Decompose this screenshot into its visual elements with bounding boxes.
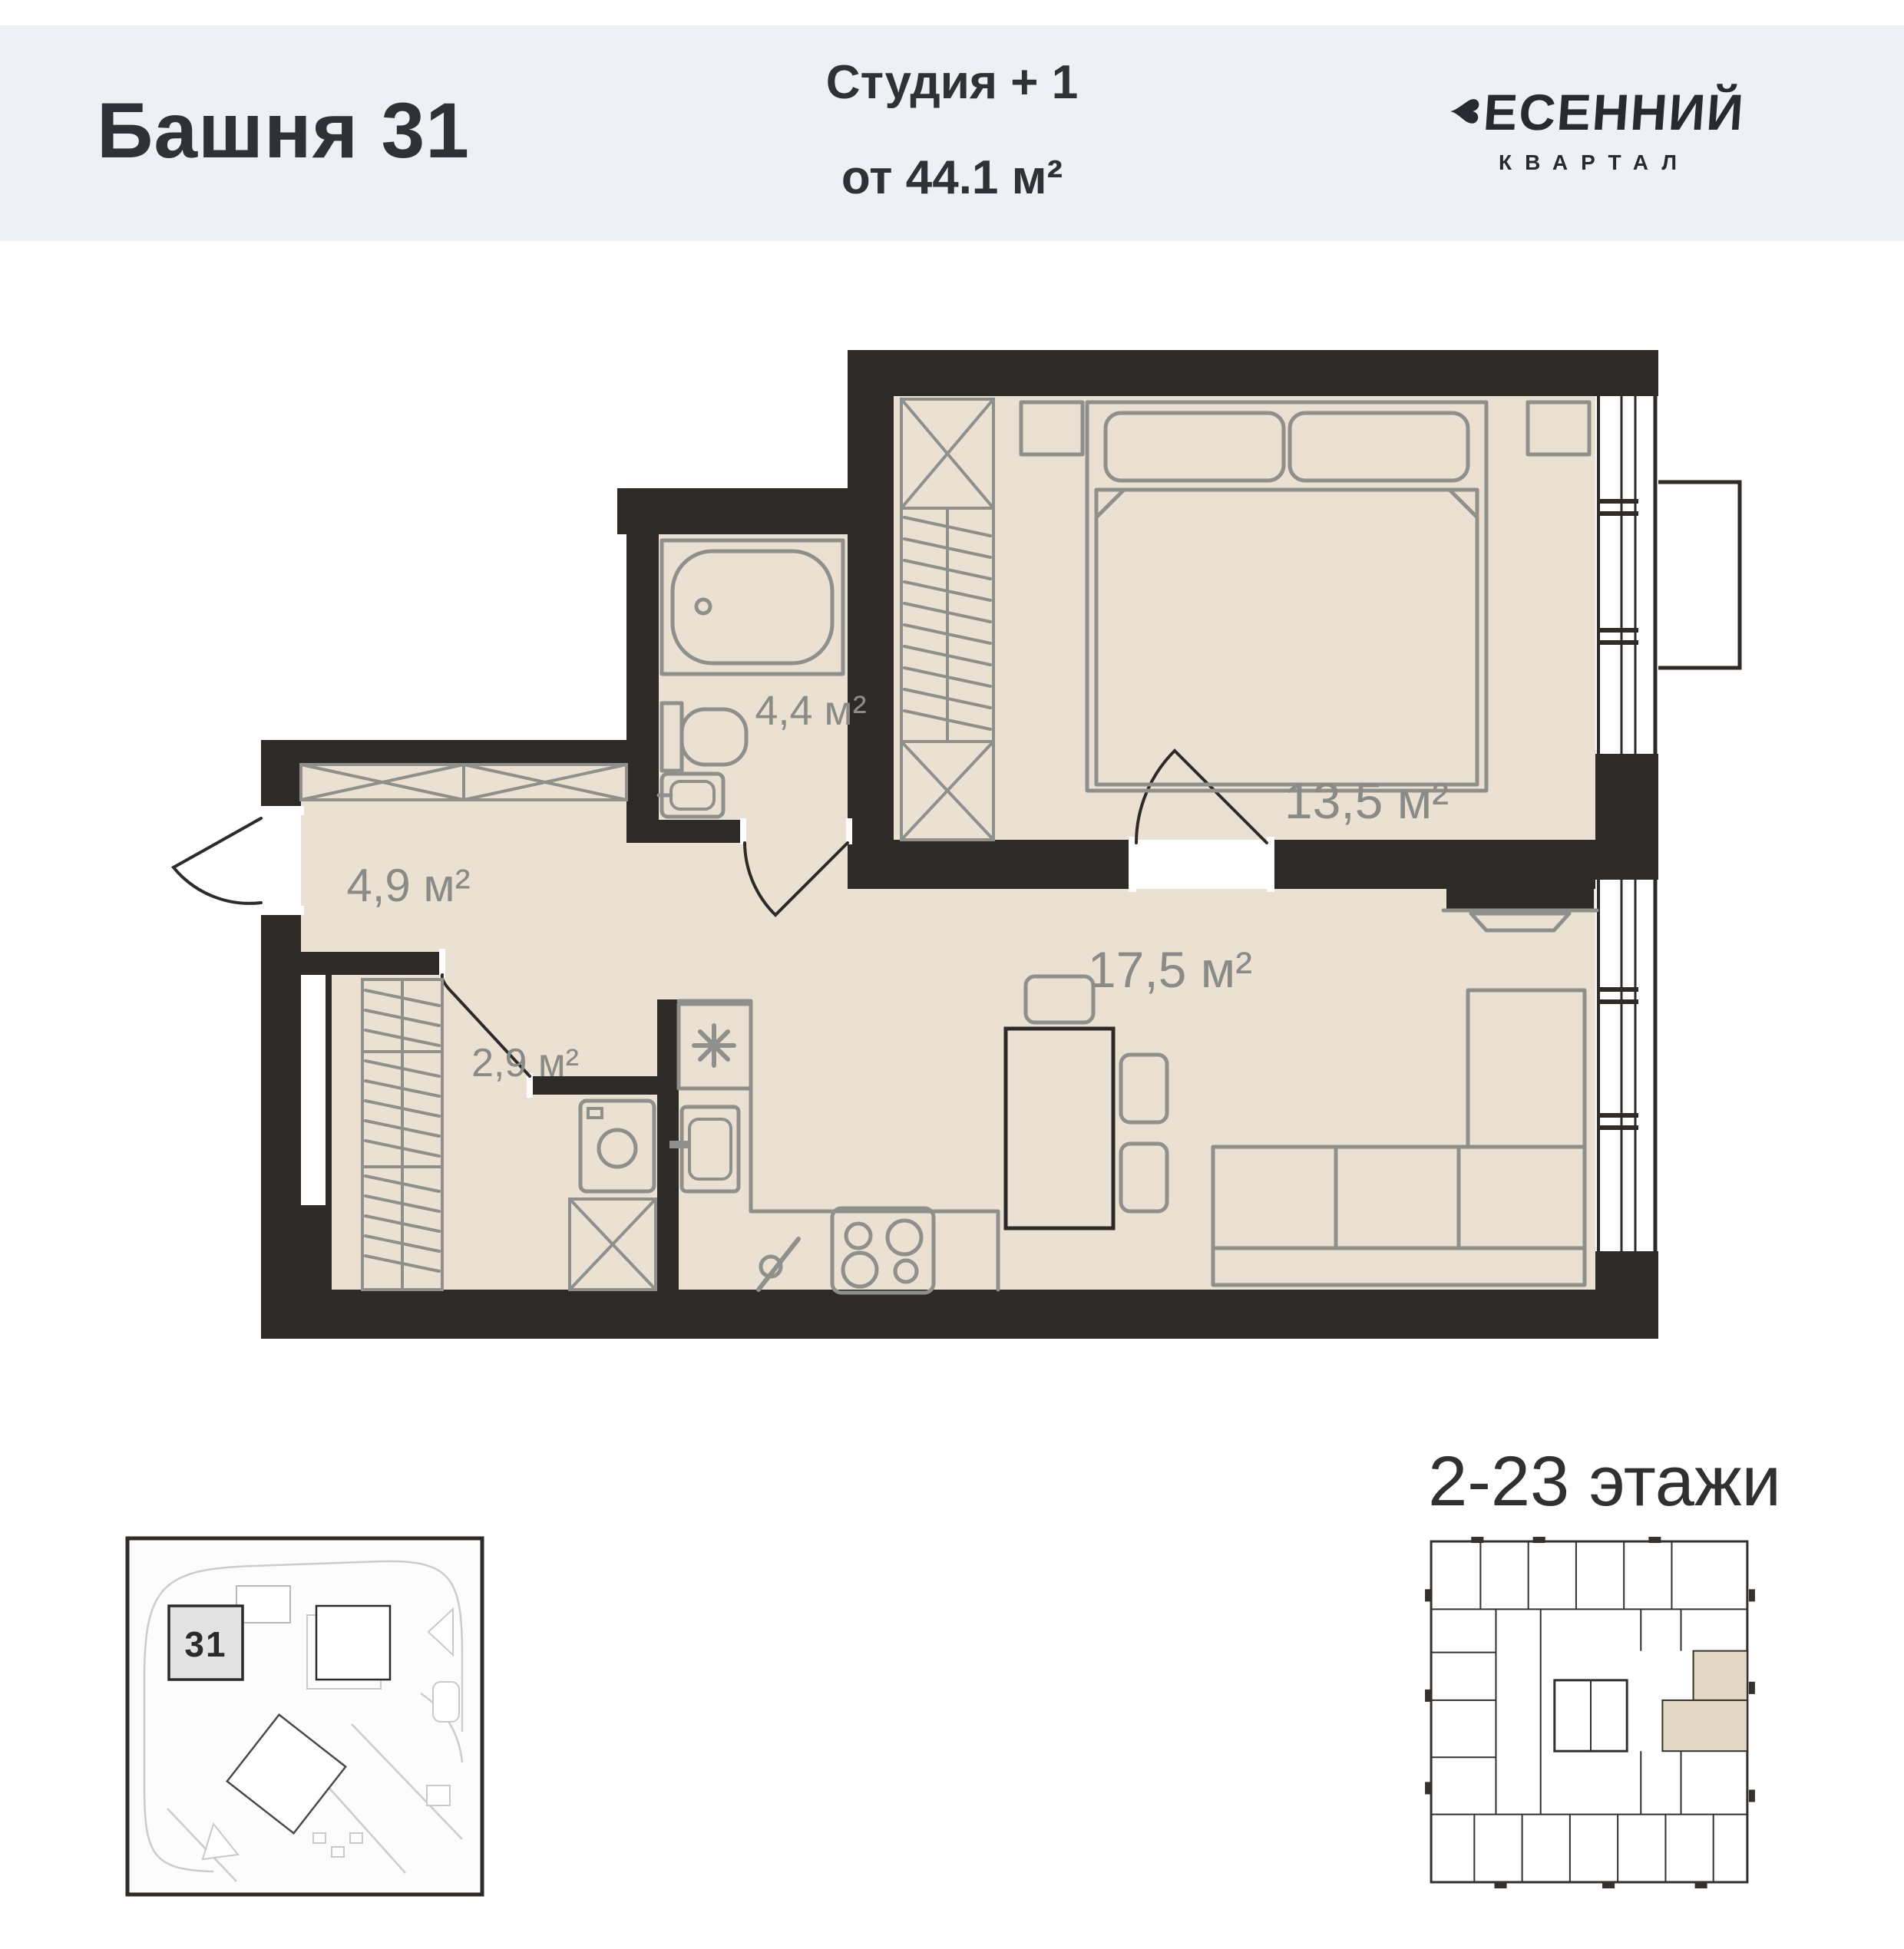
brand-logo: ♥ ЕСЕННИЙ КВАРТАЛ (1403, 83, 1793, 175)
area-label-living: 17,5 м² (1088, 941, 1252, 998)
entrance-door-swing (174, 818, 261, 903)
unit-type: Студия + 1 (568, 55, 1336, 110)
building-outline (316, 1606, 390, 1680)
window-living (1595, 880, 1658, 1251)
heart-icon: ♥ (1442, 97, 1493, 127)
page: Башня 31 Студия + 1 от 44.1 м² ♥ ЕСЕННИЙ… (0, 0, 1904, 1949)
brand-subtitle: КВАРТАЛ (1393, 150, 1783, 175)
tower-title: Башня 31 (97, 86, 470, 176)
site-marker-31: 31 (169, 1606, 243, 1680)
shaft-niche (301, 975, 326, 1205)
balcony (1655, 482, 1740, 668)
tv-icon (1446, 889, 1594, 909)
area-label-bathroom: 4,4 м² (755, 688, 866, 734)
highlight-apartment (1694, 1651, 1747, 1700)
area-label-hallway: 4,9 м² (346, 860, 470, 911)
unit-area: от 44.1 м² (568, 150, 1336, 205)
floor-plan: 4,4 м² 13,5 м² 4,9 м² 17,5 м² 2,9 м² (138, 330, 1827, 1374)
area-label-bedroom: 13,5 м² (1284, 772, 1449, 829)
brand-wordmark: ♥ ЕСЕННИЙ (1401, 83, 1795, 141)
area-label-closet: 2,9 м² (471, 1041, 579, 1085)
brand-name: ЕСЕННИЙ (1482, 83, 1747, 141)
site-map: 31 (121, 1532, 488, 1901)
window-bedroom (1595, 396, 1658, 754)
highlight-apartment (1662, 1700, 1747, 1751)
floors-note: 2-23 этажи (1344, 1442, 1866, 1522)
floor-plate-map (1425, 1535, 1757, 1890)
site-marker-label: 31 (184, 1624, 226, 1664)
